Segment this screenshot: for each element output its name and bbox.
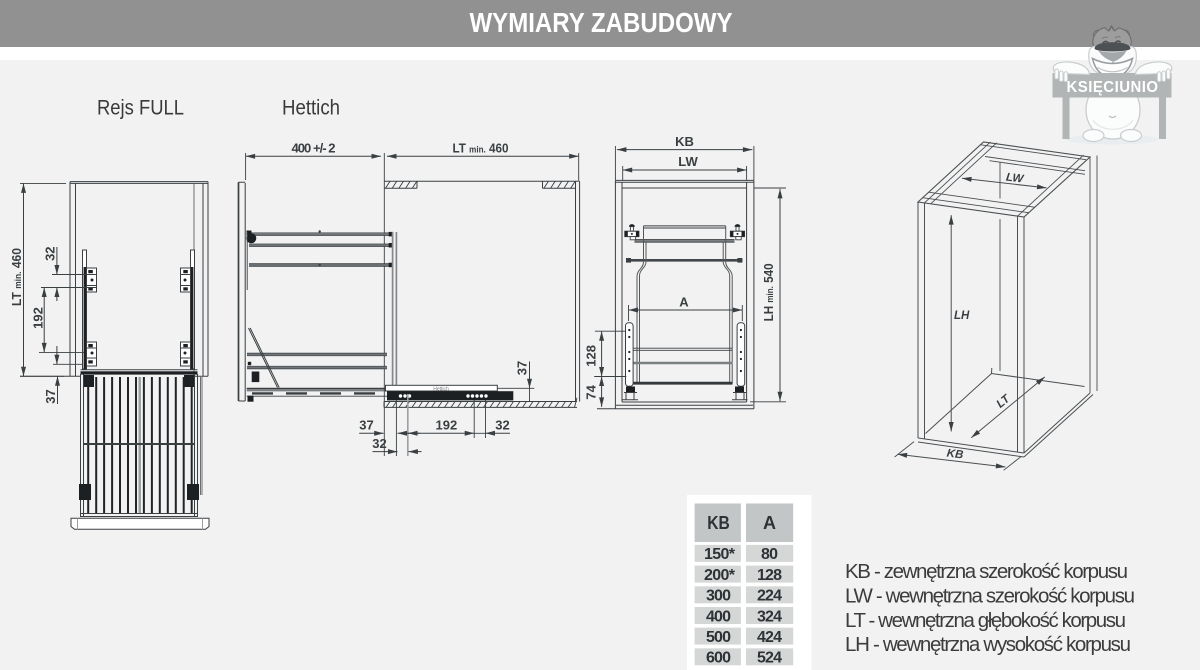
svg-text:150*: 150* [704, 546, 736, 563]
svg-text:128: 128 [757, 567, 782, 584]
svg-text:500: 500 [706, 629, 731, 646]
svg-text:37: 37 [359, 418, 373, 433]
svg-text:80: 80 [761, 546, 778, 563]
svg-text:KB: KB [675, 134, 694, 149]
svg-text:LW: LW [1005, 172, 1025, 186]
svg-text:LW: LW [678, 154, 698, 169]
svg-text:200*: 200* [704, 567, 736, 584]
svg-text:32: 32 [43, 246, 58, 260]
svg-text:324: 324 [757, 608, 782, 625]
svg-text:600: 600 [706, 650, 731, 667]
svg-text:A: A [763, 513, 776, 533]
svg-text:KB: KB [946, 448, 964, 462]
svg-text:224: 224 [757, 588, 782, 605]
svg-text:A: A [679, 294, 689, 309]
svg-text:424: 424 [757, 629, 782, 646]
svg-text:400 +/- 2: 400 +/- 2 [292, 141, 336, 156]
svg-text:WYMIARY ZABUDOWY: WYMIARY ZABUDOWY [470, 7, 733, 38]
svg-text:524: 524 [757, 650, 782, 667]
svg-text:LH: LH [954, 310, 970, 322]
svg-text:LH - wewnętrzna wysokość korpu: LH - wewnętrzna wysokość korpusu [845, 633, 1131, 656]
svg-text:Hettich: Hettich [282, 97, 340, 120]
svg-text:KB - zewnętrzna szerokość korp: KB - zewnętrzna szerokość korpusu [845, 560, 1128, 583]
svg-text:KB: KB [707, 513, 730, 533]
svg-text:74: 74 [584, 384, 599, 399]
svg-text:37: 37 [43, 389, 58, 403]
svg-text:32: 32 [495, 418, 509, 433]
svg-text:37: 37 [515, 361, 530, 375]
svg-text:192: 192 [436, 418, 458, 433]
svg-text:Rejs FULL: Rejs FULL [97, 97, 184, 120]
svg-text:300: 300 [706, 588, 731, 605]
svg-text:KSIĘCIUNIO: KSIĘCIUNIO [1067, 79, 1159, 96]
svg-text:128: 128 [584, 345, 599, 367]
svg-text:192: 192 [31, 307, 46, 329]
svg-text:LW - wewnętrzna szerokość korp: LW - wewnętrzna szerokość korpusu [845, 585, 1135, 608]
svg-text:400: 400 [706, 608, 731, 625]
svg-text:32: 32 [372, 436, 386, 451]
svg-text:LT - wewnętrzna głębokość korp: LT - wewnętrzna głębokość korpusu [845, 609, 1126, 632]
